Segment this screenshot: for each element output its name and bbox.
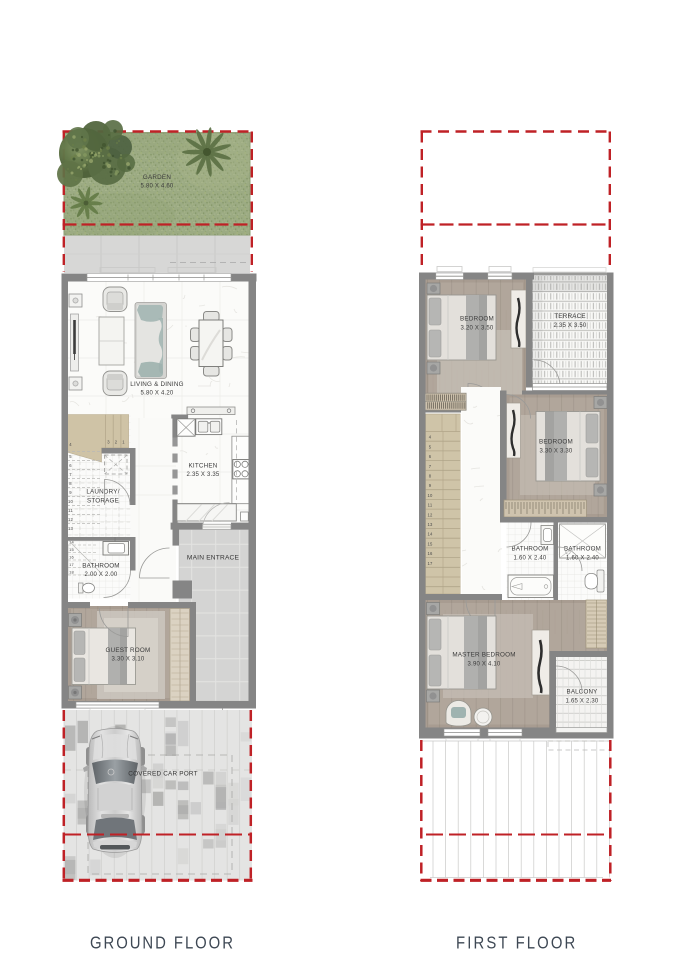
svg-text:18: 18 [69, 570, 74, 575]
svg-text:11: 11 [68, 508, 73, 513]
svg-text:GROUND FLOOR: GROUND FLOOR [90, 933, 235, 952]
svg-text:1.60 X 2.40: 1.60 X 2.40 [514, 556, 547, 562]
svg-text:GUEST ROOM: GUEST ROOM [106, 647, 151, 654]
svg-text:2.00 X 2.00: 2.00 X 2.00 [85, 572, 118, 578]
svg-text:GARDEN: GARDEN [143, 174, 171, 181]
svg-text:BEDROOM: BEDROOM [460, 316, 494, 323]
svg-text:2.35 X 3.35: 2.35 X 3.35 [187, 472, 220, 478]
svg-text:1.60 X 2.40: 1.60 X 2.40 [566, 556, 599, 562]
svg-text:13: 13 [427, 522, 433, 527]
svg-text:14: 14 [427, 532, 433, 537]
svg-text:LIVING & DINING: LIVING & DINING [130, 381, 183, 388]
svg-text:3.90 X 4.10: 3.90 X 4.10 [468, 662, 501, 668]
svg-text:MAIN ENTRACE: MAIN ENTRACE [187, 555, 240, 562]
svg-text:13: 13 [68, 526, 74, 531]
svg-text:COVERED CAR PORT: COVERED CAR PORT [128, 771, 197, 778]
svg-text:3.30 X 3.30: 3.30 X 3.30 [540, 449, 573, 455]
svg-text:MASTER BEDROOM: MASTER BEDROOM [452, 652, 515, 659]
svg-text:16: 16 [69, 555, 74, 560]
svg-text:1.65 X 2.30: 1.65 X 2.30 [566, 699, 599, 705]
svg-text:16: 16 [427, 551, 433, 556]
svg-text:15: 15 [69, 547, 74, 552]
svg-text:BATHROOM: BATHROOM [512, 546, 549, 553]
svg-text:FIRST FLOOR: FIRST FLOOR [456, 933, 577, 952]
svg-text:BATHROOM: BATHROOM [564, 546, 601, 553]
svg-text:LAUNDRY/: LAUNDRY/ [86, 489, 119, 496]
svg-text:15: 15 [427, 541, 433, 546]
svg-text:TERRACE: TERRACE [554, 313, 586, 320]
svg-text:KITCHEN: KITCHEN [188, 463, 217, 470]
svg-text:2.35 X 3.50: 2.35 X 3.50 [554, 323, 587, 329]
svg-text:STORAGE: STORAGE [87, 498, 119, 505]
svg-text:3.30 X 3.10: 3.30 X 3.10 [112, 657, 145, 663]
svg-text:BEDROOM: BEDROOM [539, 439, 573, 446]
svg-text:12: 12 [68, 517, 74, 522]
svg-text:5.80 X 4.60: 5.80 X 4.60 [141, 184, 174, 190]
svg-text:10: 10 [68, 499, 74, 504]
svg-text:17: 17 [69, 562, 74, 567]
svg-text:BATHROOM: BATHROOM [82, 563, 120, 570]
svg-text:17: 17 [427, 561, 433, 566]
svg-text:10: 10 [427, 493, 433, 498]
svg-text:5.80 X 4.20: 5.80 X 4.20 [141, 391, 174, 397]
svg-text:11: 11 [428, 503, 433, 508]
svg-text:12: 12 [427, 512, 433, 517]
svg-text:3.20 X 3.50: 3.20 X 3.50 [461, 326, 494, 332]
